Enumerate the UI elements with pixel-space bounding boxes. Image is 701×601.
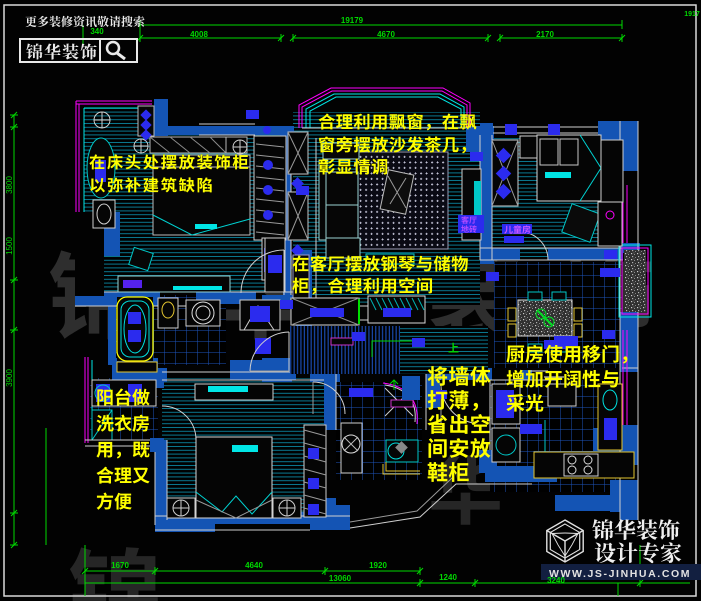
svg-text:13060: 13060 (329, 574, 352, 583)
svg-text:WWW.JS-JINHUA.COM: WWW.JS-JINHUA.COM (549, 568, 691, 580)
svg-text:1240: 1240 (439, 573, 457, 582)
svg-text:4670: 4670 (377, 30, 395, 39)
svg-text:1500: 1500 (5, 237, 14, 255)
svg-text:4008: 4008 (190, 30, 208, 39)
svg-text:4640: 4640 (245, 561, 263, 570)
svg-text:19179: 19179 (341, 16, 364, 25)
svg-text:3240: 3240 (547, 576, 565, 585)
svg-text:3900: 3900 (5, 369, 14, 387)
svg-text:1920: 1920 (369, 561, 387, 570)
svg-text:2170: 2170 (536, 30, 554, 39)
svg-text:1917: 1917 (684, 11, 700, 18)
svg-text:1670: 1670 (111, 561, 129, 570)
svg-text:340: 340 (90, 27, 104, 36)
svg-text:3800: 3800 (5, 176, 14, 194)
